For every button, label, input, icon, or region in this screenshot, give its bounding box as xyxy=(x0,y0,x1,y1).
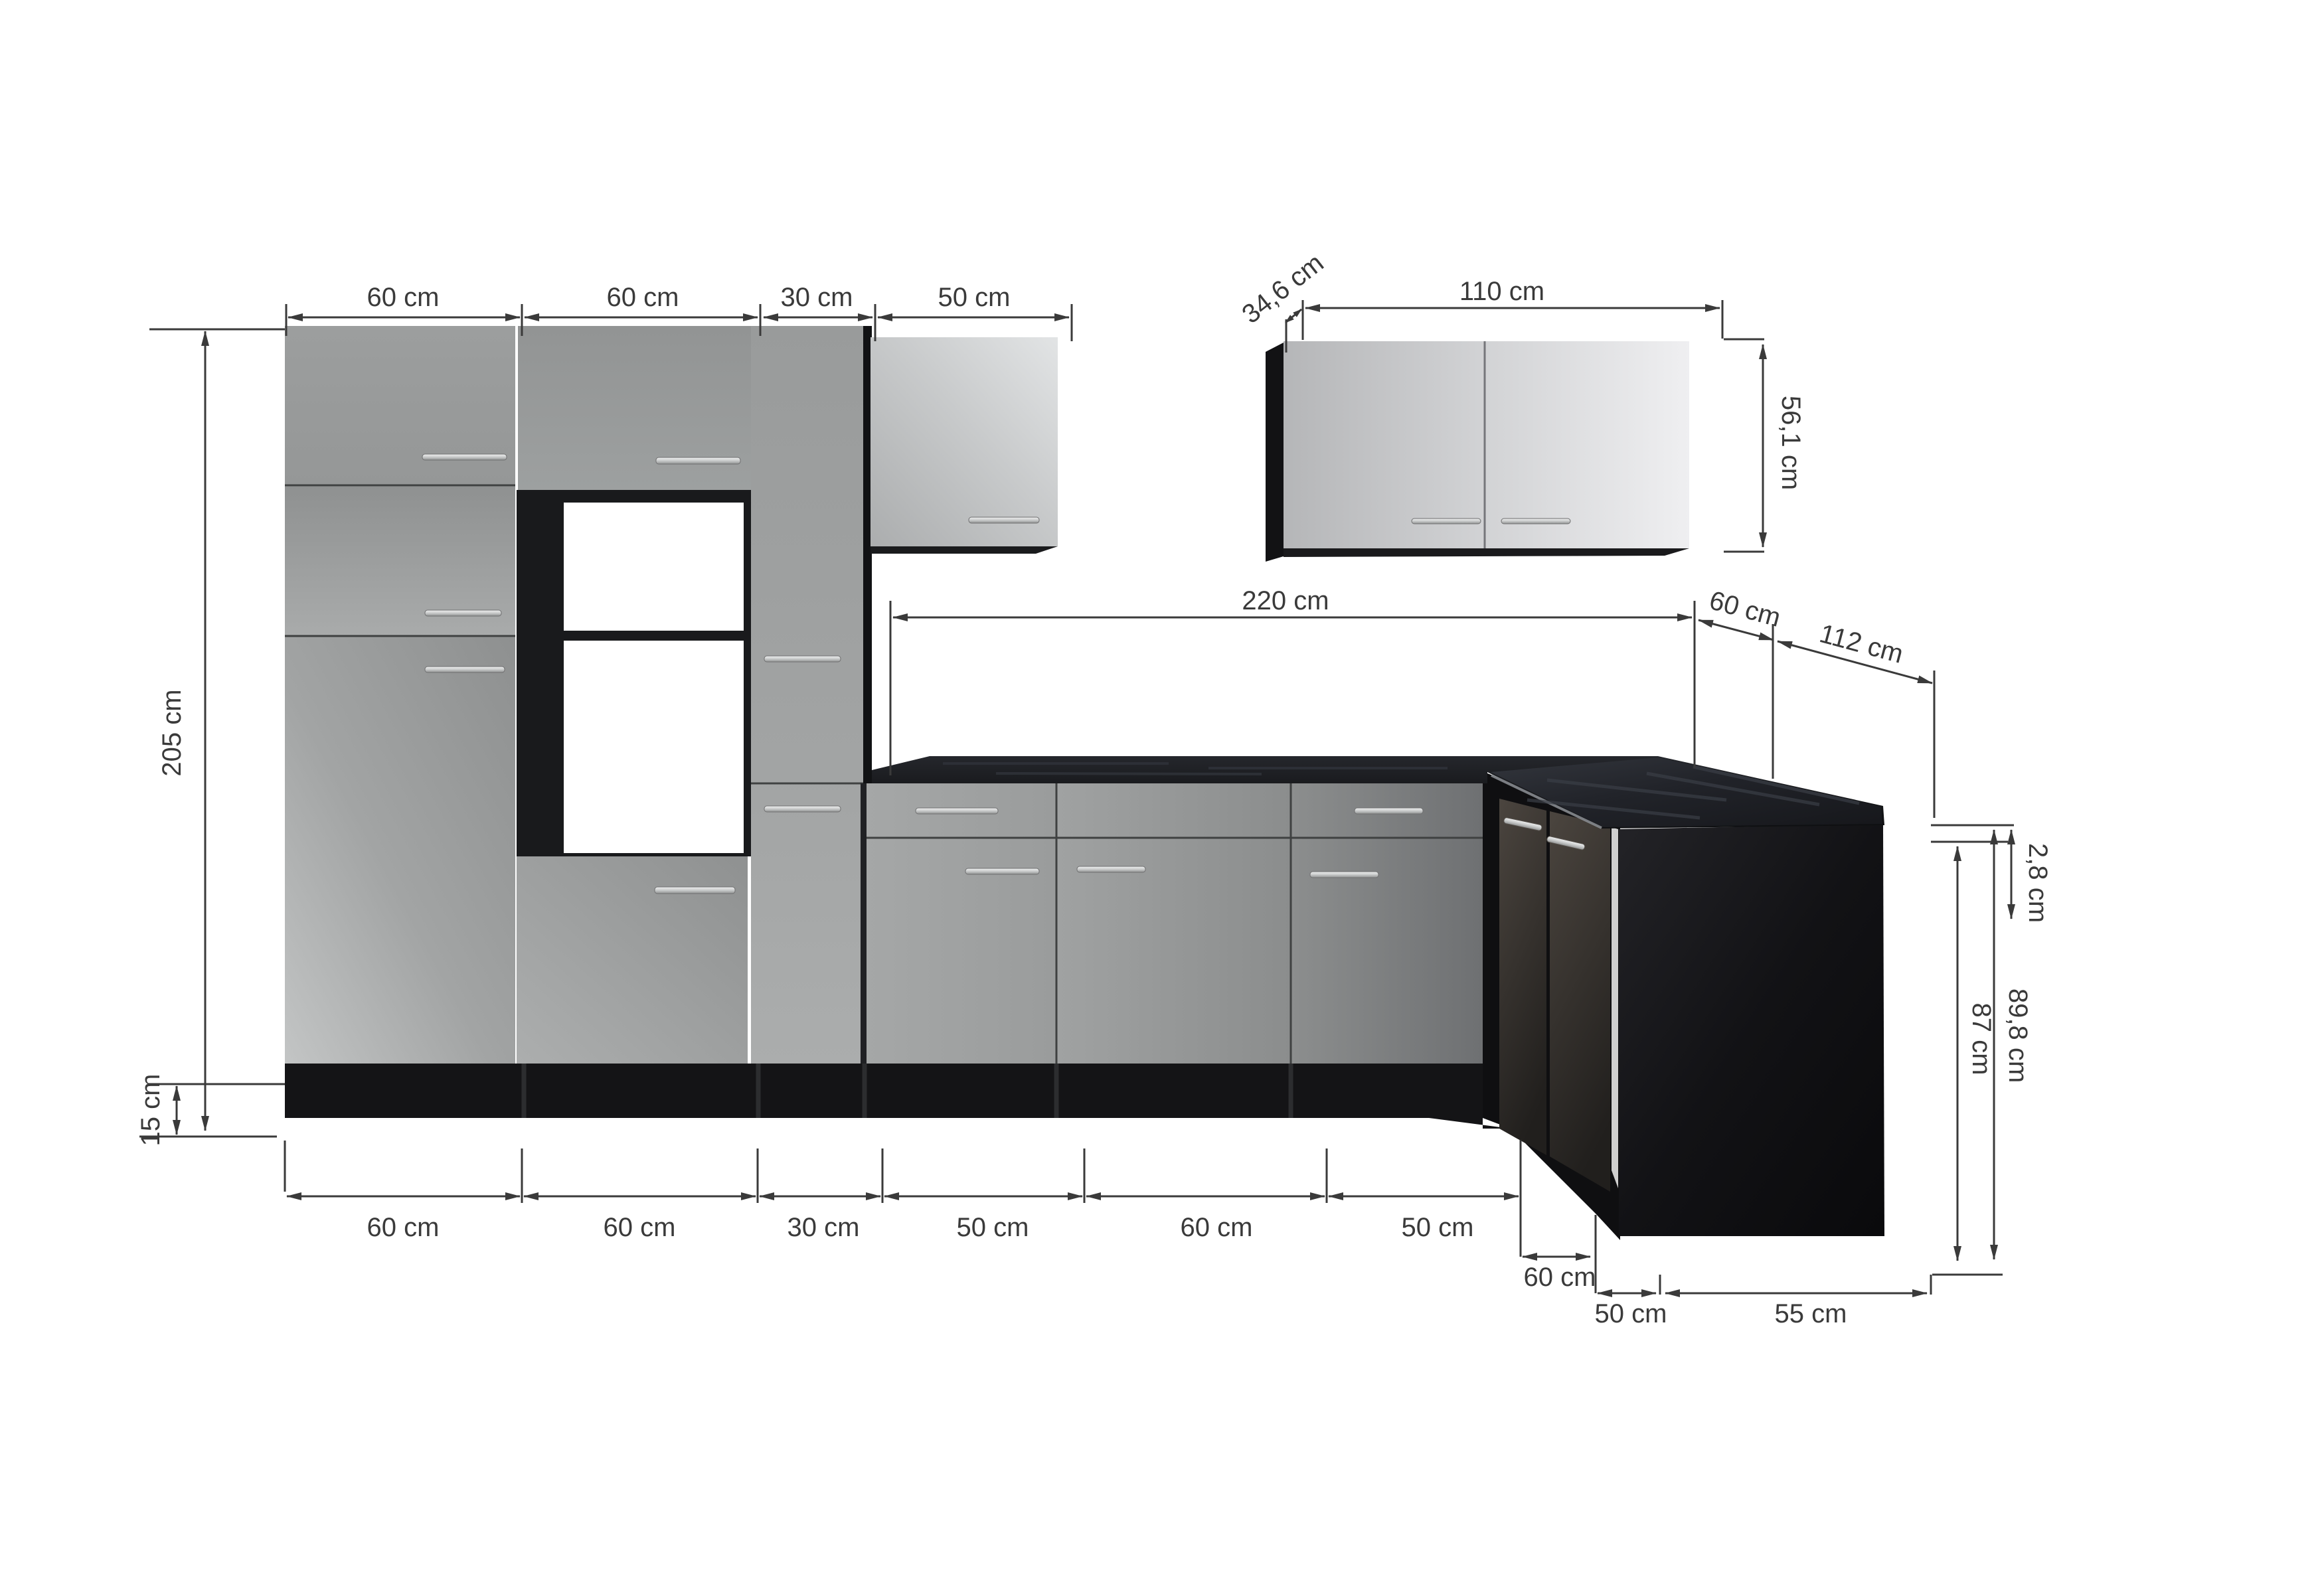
svg-text:30 cm: 30 cm xyxy=(781,283,853,312)
svg-text:15 cm: 15 cm xyxy=(136,1074,165,1147)
svg-text:89,8 cm: 89,8 cm xyxy=(2003,989,2033,1083)
svg-text:55 cm: 55 cm xyxy=(1775,1299,1847,1328)
svg-text:50 cm: 50 cm xyxy=(938,283,1011,312)
svg-text:220 cm: 220 cm xyxy=(1242,586,1329,615)
svg-text:50 cm: 50 cm xyxy=(1595,1299,1667,1328)
svg-text:110 cm: 110 cm xyxy=(1459,277,1544,306)
svg-text:60 cm: 60 cm xyxy=(1181,1213,1253,1242)
svg-text:60 cm: 60 cm xyxy=(367,1213,440,1242)
svg-text:2,8 cm: 2,8 cm xyxy=(2023,843,2052,923)
svg-text:60 cm: 60 cm xyxy=(607,283,679,312)
svg-text:87 cm: 87 cm xyxy=(1967,1003,1996,1075)
svg-text:30 cm: 30 cm xyxy=(788,1213,860,1242)
svg-text:205 cm: 205 cm xyxy=(157,689,187,776)
svg-text:60 cm: 60 cm xyxy=(367,283,440,312)
svg-text:60 cm: 60 cm xyxy=(604,1213,676,1242)
svg-text:50 cm: 50 cm xyxy=(1402,1213,1474,1242)
svg-text:50 cm: 50 cm xyxy=(957,1213,1029,1242)
svg-text:56,1 cm: 56,1 cm xyxy=(1776,396,1805,490)
svg-text:60 cm: 60 cm xyxy=(1524,1263,1596,1292)
